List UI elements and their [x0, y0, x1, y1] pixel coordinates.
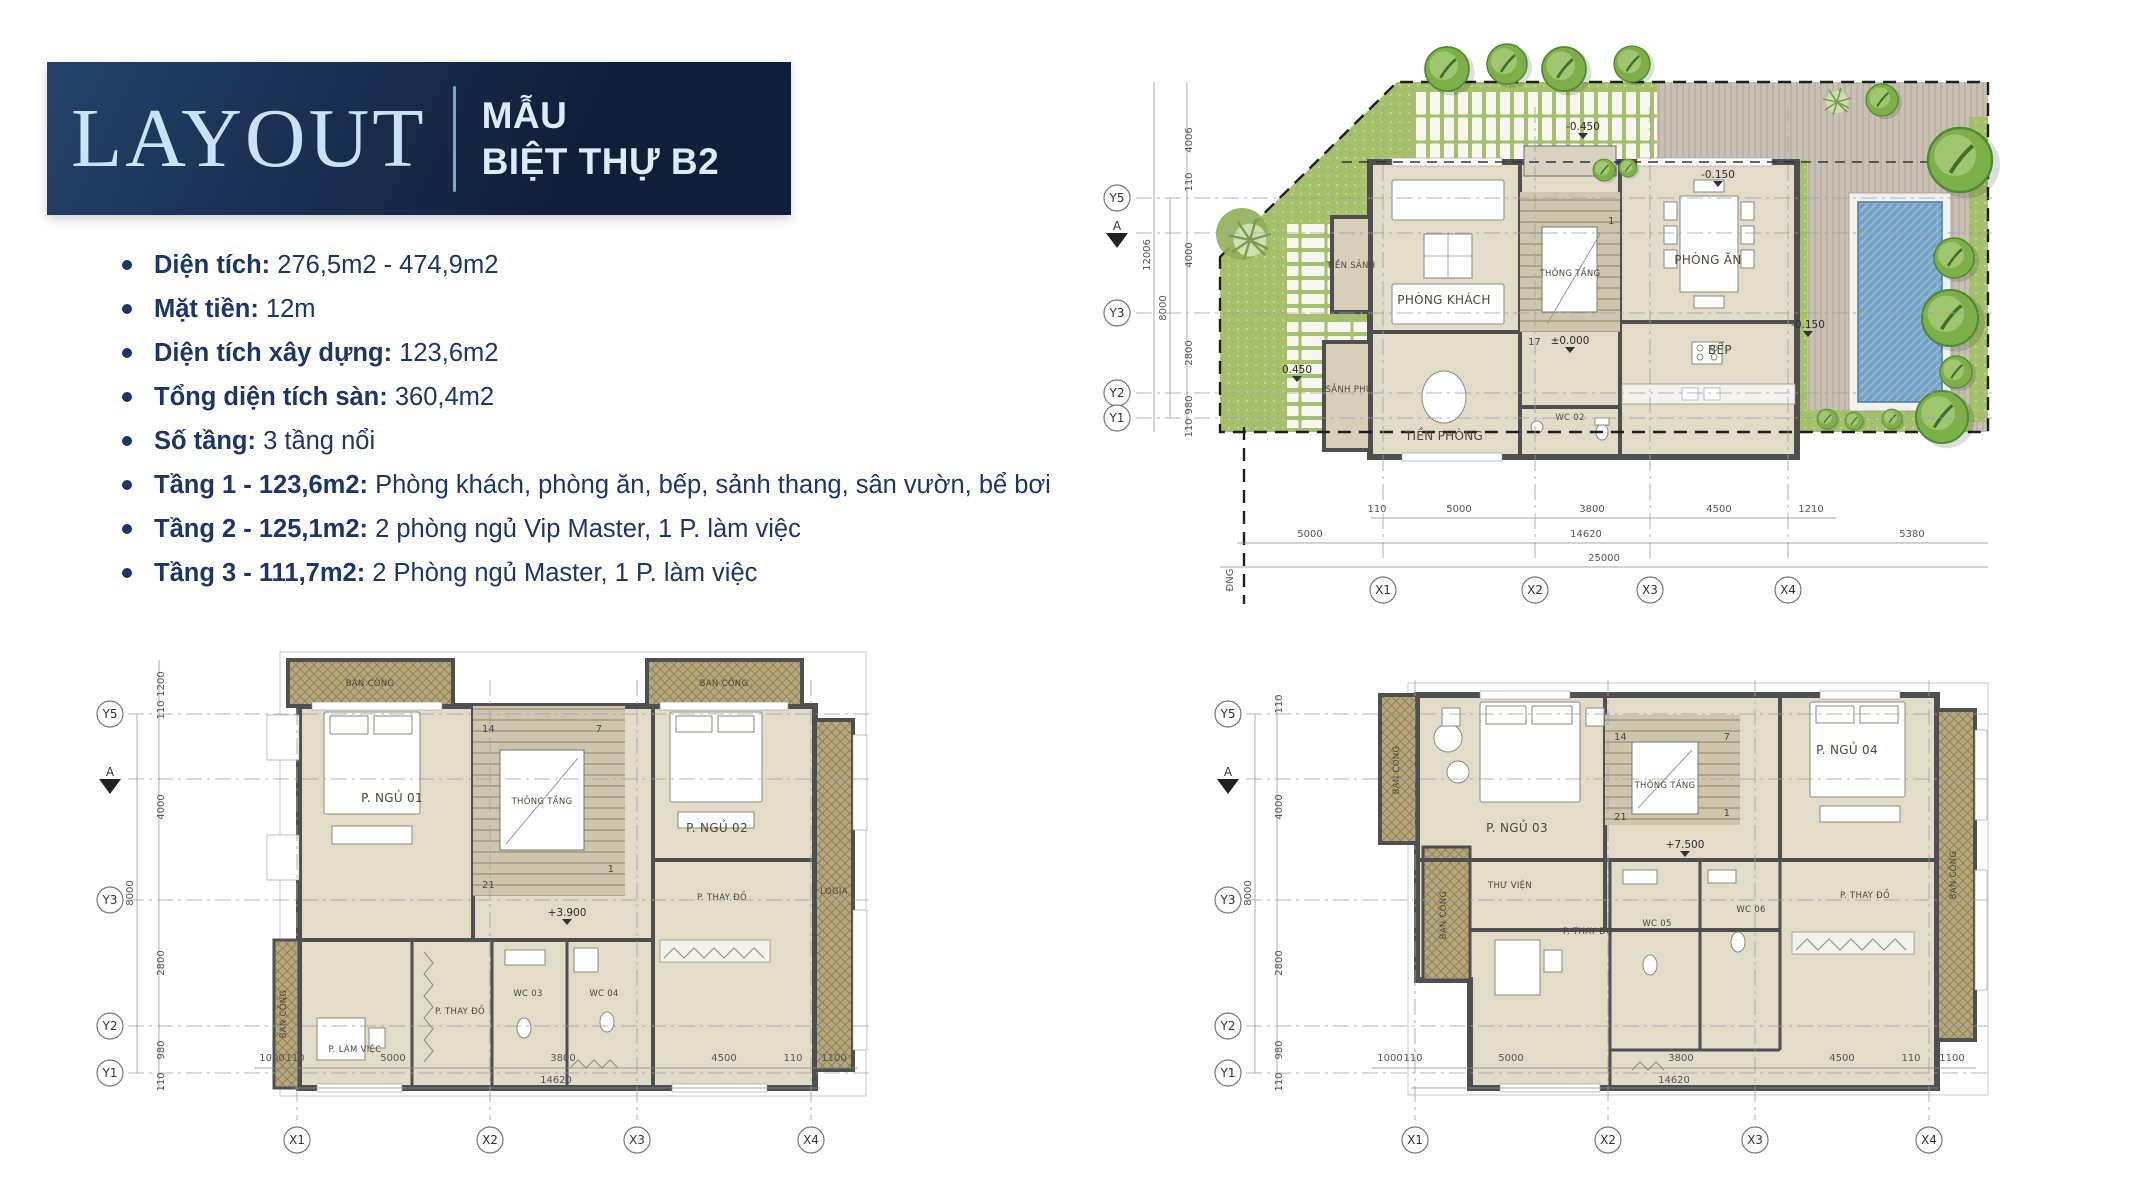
spec-item: Tầng 3 - 111,7m2: 2 Phòng ngủ Master, 1 …: [118, 556, 1051, 590]
spec-item: Số tầng: 3 tầng nổi: [118, 424, 1051, 458]
room-label-wc03: WC 03: [513, 989, 542, 999]
spec-label: Diện tích xây dựng:: [154, 339, 392, 367]
spec-value: 276,5m2 - 474,9m2: [277, 251, 498, 279]
stair-number: 1: [1608, 216, 1614, 227]
svg-text:980: 980: [1274, 1040, 1285, 1059]
bullet-icon: [122, 304, 132, 314]
svg-text:X1: X1: [289, 1133, 305, 1147]
page: LAYOUT MẪU BIỆT THỰ B2 Diện tích: 276,5m…: [0, 0, 2134, 1201]
svg-text:Y1: Y1: [102, 1066, 118, 1080]
spec-item: Tầng 1 - 123,6m2: Phòng khách, phòng ăn,…: [118, 468, 1051, 502]
spec-list: Diện tích: 276,5m2 - 474,9m2 Mặt tiền: 1…: [118, 248, 1051, 600]
svg-text:3800: 3800: [1668, 1053, 1693, 1064]
room-label-phong-khach: PHÒNG KHÁCH: [1397, 292, 1490, 307]
svg-text:110: 110: [783, 1053, 802, 1064]
room-label-logia: LOGIA: [820, 887, 848, 897]
svg-text:5380: 5380: [1899, 529, 1924, 540]
svg-text:14620: 14620: [540, 1075, 572, 1086]
svg-text:Y2: Y2: [102, 1019, 118, 1033]
svg-text:-0.150: -0.150: [1701, 169, 1735, 181]
svg-text:+7.500: +7.500: [1666, 839, 1705, 851]
spec-item: Tổng diện tích sàn: 360,4m2: [118, 380, 1051, 414]
svg-text:X3: X3: [1642, 583, 1658, 597]
spec-value: Phòng khách, phòng ăn, bếp, sảnh thang, …: [375, 471, 1051, 499]
spec-value: 360,4m2: [395, 383, 494, 411]
wardrobe-ngu04: [1792, 932, 1914, 954]
spec-value: 2 phòng ngủ Vip Master, 1 P. làm việc: [375, 515, 801, 543]
room-label-wc05: WC 05: [1642, 919, 1671, 929]
room-label-ban-cong: BAN CÔNG: [700, 677, 749, 689]
svg-text:Y5: Y5: [1109, 191, 1125, 205]
spec-label: Tầng 2 - 125,1m2:: [154, 515, 368, 543]
svg-text:X2: X2: [1527, 583, 1543, 597]
svg-text:110: 110: [1274, 1072, 1285, 1091]
room-label-wc06: WC 06: [1736, 905, 1765, 915]
svg-text:X4: X4: [1921, 1133, 1937, 1147]
svg-text:A: A: [1224, 765, 1233, 779]
stair-number: 14: [482, 724, 495, 735]
svg-text:4500: 4500: [711, 1053, 736, 1064]
svg-text:X4: X4: [1780, 583, 1796, 597]
svg-text:980: 980: [1184, 395, 1195, 414]
svg-text:4000: 4000: [1274, 794, 1285, 819]
svg-text:1210: 1210: [1798, 504, 1823, 515]
svg-text:A: A: [1113, 219, 1122, 233]
header-divider: [453, 86, 456, 192]
room-label-p-ngu-02: P. NGỦ 02: [686, 819, 748, 835]
spec-label: Tầng 1 - 123,6m2:: [154, 471, 368, 499]
bullet-icon: [122, 568, 132, 578]
spec-item: Tầng 2 - 125,1m2: 2 phòng ngủ Vip Master…: [118, 512, 1051, 546]
spec-label: Tổng diện tích sàn:: [154, 383, 388, 411]
svg-text:110: 110: [285, 1053, 304, 1064]
svg-text:1000: 1000: [259, 1053, 284, 1064]
spec-label: Diện tích:: [154, 251, 270, 279]
svg-text:Y1: Y1: [1220, 1066, 1236, 1080]
svg-text:Y5: Y5: [1220, 707, 1236, 721]
svg-text:110: 110: [1901, 1053, 1920, 1064]
room-label-ban-cong: BAN CÔNG: [346, 677, 395, 689]
svg-text:Y3: Y3: [1109, 306, 1125, 320]
svg-text:14620: 14620: [1658, 1075, 1690, 1086]
dimensions-left: 4006 110 4000 2800 980 110 8000 12006: [1142, 82, 1195, 438]
svg-text:110: 110: [1403, 1053, 1422, 1064]
header-subtitle-line1: MẪU: [482, 93, 720, 138]
svg-text:2800: 2800: [1184, 340, 1195, 365]
room-label-thu-vien: THƯ VIỆN: [1487, 879, 1532, 891]
dimensions-left: 1200 110 4000 2800 980 110 8000: [125, 660, 167, 1092]
svg-text:0.450: 0.450: [1282, 364, 1312, 376]
bullet-icon: [122, 392, 132, 402]
svg-text:X2: X2: [482, 1133, 498, 1147]
room-label-p-ngu-04: P. NGỦ 04: [1816, 741, 1878, 757]
svg-text:8000: 8000: [1158, 295, 1169, 320]
dimensions-left: 110 4000 2800 980 110 8000: [1243, 694, 1285, 1091]
svg-text:1100: 1100: [821, 1053, 846, 1064]
floor2-plan-drawing: BAN CÔNG BAN CÔNG P. NGỦ 01 THÔNG TẦNG P…: [62, 620, 912, 1201]
svg-text:5000: 5000: [1297, 529, 1322, 540]
svg-text:8000: 8000: [1243, 880, 1254, 905]
svg-text:4500: 4500: [1829, 1053, 1854, 1064]
dimensions-bottom: 110 5000 3800 4500 1210 5000 14620 5380 …: [1220, 504, 1988, 567]
spec-value: 2 Phòng ngủ Master, 1 P. làm việc: [372, 559, 757, 587]
svg-text:X2: X2: [1600, 1133, 1616, 1147]
svg-text:1100: 1100: [1939, 1053, 1964, 1064]
svg-text:2800: 2800: [1274, 950, 1285, 975]
header-subtitle: MẪU BIỆT THỰ B2: [482, 93, 720, 183]
spec-value: 12m: [266, 295, 316, 323]
spec-item: Mặt tiền: 12m: [118, 292, 1051, 326]
svg-text:3800: 3800: [1579, 504, 1604, 515]
svg-text:4000: 4000: [156, 794, 167, 819]
bullet-icon: [122, 480, 132, 490]
svg-text:110: 110: [156, 700, 167, 719]
floor3-plan-drawing: BAN CÔNG BAN CÔNG BAN CÔNG P. NGỦ 03 THÔ…: [1180, 620, 2030, 1201]
header-subtitle-line2: BIỆT THỰ B2: [482, 139, 720, 184]
svg-text:2800: 2800: [156, 950, 167, 975]
stair-number: 1: [608, 864, 614, 875]
svg-text:8000: 8000: [125, 880, 136, 905]
svg-text:A: A: [106, 765, 115, 779]
stair-number: 14: [1614, 732, 1627, 743]
svg-text:110: 110: [1367, 504, 1386, 515]
stair-number: 7: [1724, 732, 1730, 743]
room-label-ban-cong: BAN CÔNG: [1947, 851, 1959, 900]
room-label-p-ngu-03: P. NGỦ 03: [1486, 819, 1548, 835]
room-sanh-phu: [1324, 342, 1370, 450]
spec-value: 123,6m2: [399, 339, 498, 367]
svg-text:12006: 12006: [1142, 239, 1153, 271]
svg-text:5000: 5000: [380, 1053, 405, 1064]
svg-text:-0.450: -0.450: [1566, 121, 1600, 133]
svg-text:±0.000: ±0.000: [1551, 335, 1590, 347]
bullet-icon: [122, 348, 132, 358]
svg-text:110: 110: [156, 1072, 167, 1091]
page-title: LAYOUT: [47, 97, 427, 181]
svg-text:110: 110: [1274, 694, 1285, 713]
road-label: ĐNG: [1225, 569, 1236, 592]
svg-text:X3: X3: [1747, 1133, 1763, 1147]
bullet-icon: [122, 436, 132, 446]
svg-text:Y3: Y3: [102, 893, 118, 907]
room-label-p-ngu-01: P. NGỦ 01: [361, 789, 423, 805]
svg-text:X3: X3: [629, 1133, 645, 1147]
site-plan-drawing: ĐNG TIỀN SẢNH PHÒNG KHÁCH THÔNG TẦNG: [1092, 12, 2132, 612]
spec-value: 3 tầng nổi: [263, 427, 375, 455]
svg-text:5000: 5000: [1446, 504, 1471, 515]
room-label-ban-cong: BAN CÔNG: [277, 990, 289, 1039]
room-label-ban-cong: BAN CÔNG: [1390, 746, 1402, 795]
room-label-tien-phong: TIỀN PHÒNG: [1404, 427, 1483, 443]
svg-text:1200: 1200: [156, 671, 167, 696]
svg-text:14620: 14620: [1570, 529, 1602, 540]
spec-item: Diện tích xây dựng: 123,6m2: [118, 336, 1051, 370]
svg-text:Y2: Y2: [1109, 386, 1125, 400]
svg-text:X1: X1: [1375, 583, 1391, 597]
svg-text:Y2: Y2: [1220, 1019, 1236, 1033]
room-label-bep: BẾP: [1708, 341, 1732, 357]
svg-text:5000: 5000: [1498, 1053, 1523, 1064]
svg-text:+3.900: +3.900: [548, 907, 587, 919]
svg-text:Y5: Y5: [102, 707, 118, 721]
stair-number: 21: [482, 880, 495, 891]
stair-count: 17: [1528, 337, 1541, 348]
svg-text:3800: 3800: [550, 1053, 575, 1064]
wardrobe-ngu02: [660, 940, 770, 962]
svg-text:4500: 4500: [1706, 504, 1731, 515]
stair-number: 21: [1614, 812, 1627, 823]
svg-text:X4: X4: [803, 1133, 819, 1147]
svg-text:-0.150: -0.150: [1791, 319, 1825, 331]
svg-text:Y1: Y1: [1109, 411, 1125, 425]
svg-text:110: 110: [1184, 418, 1195, 437]
stair-number: 1: [1724, 808, 1730, 819]
svg-text:110: 110: [1184, 172, 1195, 191]
bullet-icon: [122, 260, 132, 270]
spec-label: Mặt tiền:: [154, 295, 259, 323]
spec-label: Số tầng:: [154, 427, 256, 455]
svg-text:25000: 25000: [1588, 553, 1620, 564]
header-banner: LAYOUT MẪU BIỆT THỰ B2: [47, 62, 791, 215]
room-label-p-lam-viec: P. LÀM VIỆC: [329, 1043, 382, 1055]
spec-label: Tầng 3 - 111,7m2:: [154, 559, 365, 587]
spec-item: Diện tích: 276,5m2 - 474,9m2: [118, 248, 1051, 282]
room-label-phong-an: PHÒNG ĂN: [1674, 252, 1741, 267]
svg-text:4000: 4000: [1184, 242, 1195, 267]
bullet-icon: [122, 524, 132, 534]
svg-text:X1: X1: [1407, 1133, 1423, 1147]
room-label-ban-cong: BAN CÔNG: [1437, 891, 1449, 940]
room-label-wc04: WC 04: [589, 989, 618, 999]
svg-text:1000: 1000: [1377, 1053, 1402, 1064]
foyer-table: [1422, 371, 1466, 423]
svg-text:4006: 4006: [1184, 127, 1195, 152]
svg-text:Y3: Y3: [1220, 893, 1236, 907]
svg-text:980: 980: [156, 1040, 167, 1059]
stair-number: 7: [596, 724, 602, 735]
